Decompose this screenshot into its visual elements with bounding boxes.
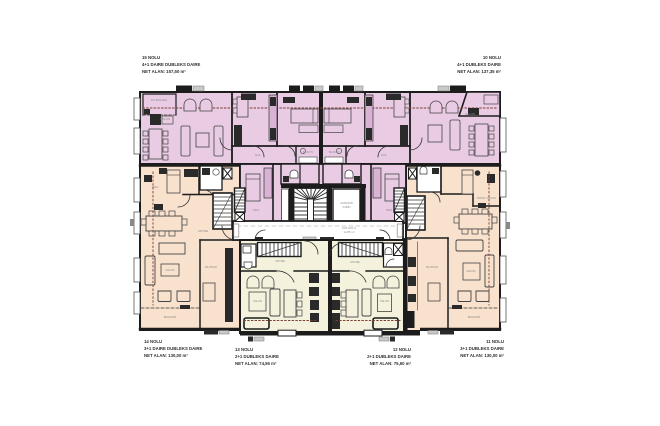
svg-text:ASANSÖR: ASANSÖR (340, 201, 353, 205)
svg-text:NET ALAN: 130,00 m²: NET ALAN: 130,00 m² (144, 353, 188, 358)
svg-text:ANTRE: ANTRE (275, 259, 285, 263)
svg-text:YATAK ODASI: YATAK ODASI (476, 196, 496, 200)
svg-text:12,85 m²: 12,85 m² (343, 230, 354, 234)
svg-text:10 NOLU: 10 NOLU (483, 55, 501, 60)
svg-text:SALON: SALON (166, 268, 175, 272)
svg-text:HOL: HOL (381, 153, 388, 157)
svg-text:12 NOLU: 12 NOLU (393, 347, 411, 352)
svg-text:NET ALAN: 75,60 m²: NET ALAN: 75,60 m² (370, 361, 412, 366)
svg-text:BANYO: BANYO (303, 150, 314, 154)
svg-text:2+1 DUBLEKS DAIRE: 2+1 DUBLEKS DAIRE (235, 354, 279, 359)
svg-text:KIS BAHCESI: KIS BAHCESI (151, 98, 168, 102)
svg-text:14 NOLU: 14 NOLU (144, 339, 162, 344)
svg-text:15 NOLU: 15 NOLU (142, 55, 160, 60)
svg-text:13 NOLU: 13 NOLU (235, 347, 253, 352)
svg-text:BALKON: BALKON (468, 315, 480, 319)
svg-text:MUTFAK: MUTFAK (426, 265, 438, 269)
svg-text:NET ALAN: 157,50 m²: NET ALAN: 157,50 m² (142, 69, 186, 74)
svg-text:SALON: SALON (380, 299, 389, 303)
svg-text:ANTRE: ANTRE (198, 229, 208, 233)
svg-text:SALON: SALON (467, 269, 476, 273)
svg-text:NET ALAN: 130,00 m²: NET ALAN: 130,00 m² (460, 353, 504, 358)
svg-text:3+1 DAIRE DUBLEKS DAIRE: 3+1 DAIRE DUBLEKS DAIRE (144, 346, 203, 351)
svg-text:HOL: HOL (255, 153, 262, 157)
svg-text:NET ALAN: 137,35 m²: NET ALAN: 137,35 m² (457, 69, 501, 74)
svg-text:SALON: SALON (253, 299, 262, 303)
svg-text:ANTRE: ANTRE (350, 260, 360, 264)
svg-text:BALKON: BALKON (164, 315, 176, 319)
svg-text:SALON: SALON (465, 112, 475, 116)
svg-text:3+1 DUBLEKS DAIRE: 3+1 DUBLEKS DAIRE (460, 346, 504, 351)
svg-text:MUTFAK: MUTFAK (205, 265, 217, 269)
svg-text:11 NOLU: 11 NOLU (486, 339, 504, 344)
svg-text:4+1 DUBLEKS DAIRE: 4+1 DUBLEKS DAIRE (457, 62, 501, 67)
svg-text:ODA: ODA (253, 208, 260, 212)
svg-text:ODA: ODA (386, 208, 393, 212)
svg-text:BANYO: BANYO (329, 150, 340, 154)
svg-text:2+1 DUBLEKS DAIRE: 2+1 DUBLEKS DAIRE (367, 354, 411, 359)
svg-text:4+1 DAIRE DUBLEKS DAIRE: 4+1 DAIRE DUBLEKS DAIRE (142, 62, 201, 67)
svg-text:SALON: SALON (160, 117, 170, 121)
svg-text:NET ALAN: 74,55 m²: NET ALAN: 74,55 m² (235, 361, 277, 366)
